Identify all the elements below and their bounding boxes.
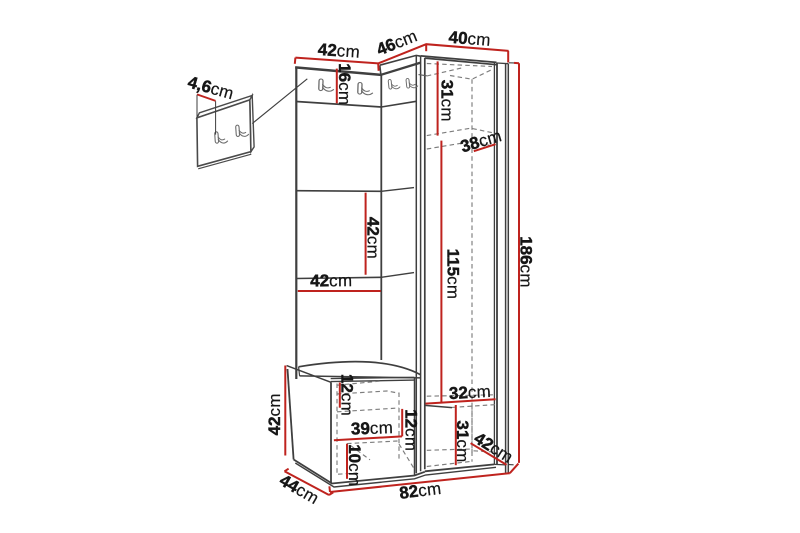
- svg-text:16cm: 16cm: [335, 63, 354, 105]
- svg-text:42cm: 42cm: [364, 217, 383, 259]
- svg-text:42cm: 42cm: [310, 271, 352, 290]
- svg-text:39cm: 39cm: [351, 418, 394, 438]
- svg-text:42cm: 42cm: [265, 393, 284, 435]
- svg-text:12cm: 12cm: [337, 374, 356, 416]
- svg-text:31cm: 31cm: [437, 80, 456, 122]
- svg-text:40cm: 40cm: [448, 28, 492, 50]
- svg-text:12cm: 12cm: [401, 409, 420, 451]
- svg-text:31cm: 31cm: [453, 420, 472, 462]
- svg-text:32cm: 32cm: [448, 382, 491, 403]
- svg-text:186cm: 186cm: [516, 236, 535, 288]
- svg-text:42cm: 42cm: [317, 40, 360, 62]
- svg-text:10cm: 10cm: [345, 444, 364, 486]
- svg-text:115cm: 115cm: [443, 249, 462, 300]
